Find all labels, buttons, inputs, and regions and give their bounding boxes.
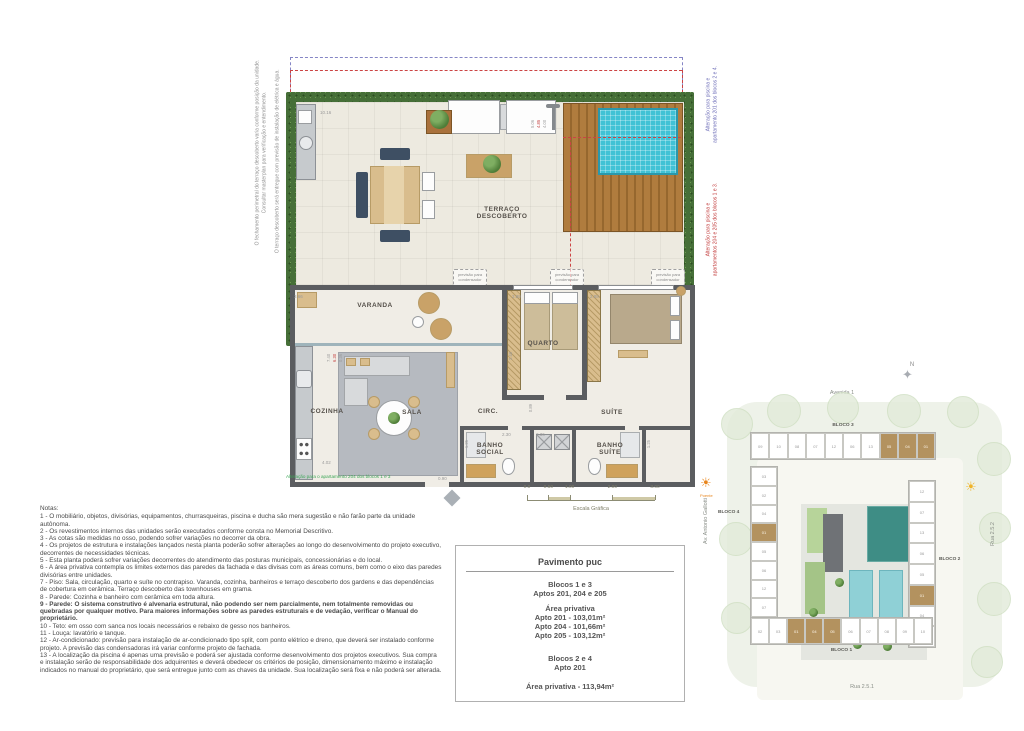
shower-head-icon	[546, 104, 560, 108]
pool-dimension-stack: 5.06 4.85 4.00	[530, 96, 547, 128]
banho-suite-label: BANHO SUÍTE	[588, 442, 632, 456]
tree	[721, 602, 753, 634]
scale-tick-label: 2.00	[604, 485, 620, 490]
sports-court	[867, 506, 909, 562]
bloco-4-strip: 0302040105061207	[750, 466, 778, 618]
window	[513, 285, 573, 290]
dim: 2.30	[502, 432, 511, 437]
dim: 4.02	[322, 460, 331, 465]
bathroom-counter	[606, 464, 638, 478]
scale-tick	[527, 495, 528, 500]
scale-bar: 0.00.501.002.003.00	[527, 492, 655, 501]
note-item: 11 - Louça: lavatório e tanque.	[40, 630, 442, 637]
site-unit-cell: 06	[751, 561, 777, 580]
site-unit-cell: 10	[914, 618, 932, 644]
tower	[823, 514, 843, 572]
dim: 2.89	[512, 294, 521, 299]
tree	[971, 646, 1003, 678]
bloco-3-label: BLOCO 3	[750, 423, 936, 428]
wall	[460, 426, 464, 483]
bloco-4-label: BLOCO 4	[718, 510, 739, 515]
scale-tick-label: 0.50	[540, 485, 556, 490]
site-unit-cell: 13	[909, 523, 935, 544]
banho-social-label: BANHO SOCIAL	[468, 442, 512, 456]
note-item: 2 - Os revestimentos internos das unidad…	[40, 528, 442, 535]
blocks13-subtitle: Aptos 201, 204 e 205	[456, 589, 684, 598]
site-plan: N ✦ Avenida 1	[712, 362, 1022, 722]
door-gap	[625, 426, 639, 430]
tree	[977, 582, 1011, 616]
tree	[835, 578, 844, 587]
tree	[977, 442, 1011, 476]
site-unit-cell: 01	[917, 433, 935, 459]
site-unit-cell: 06	[909, 543, 935, 564]
blocks13-title: Blocos 1 e 3	[456, 580, 684, 589]
chaise	[344, 378, 368, 406]
area-title: Área privativa	[456, 604, 684, 613]
pavimento-info-box: Pavimento puc Blocos 1 e 3 Aptos 201, 20…	[455, 545, 685, 702]
site-block-square: 09100807120613050401 0302040105061207 12…	[727, 402, 1002, 687]
dining-chair	[422, 200, 435, 219]
bathroom-counter	[466, 464, 496, 478]
site-unit-cell: 05	[751, 542, 777, 561]
wall	[502, 395, 544, 400]
condenser-box: previsão para condensador	[453, 269, 487, 286]
site-unit-cell: 02	[751, 618, 769, 644]
floor-plan: TERRAÇO DESCOBERTO 10.16 5.06 4.85 4.00 …	[280, 40, 705, 510]
site-unit-cell: 01	[751, 523, 777, 542]
pool	[598, 108, 678, 175]
site-unit-cell: 12	[751, 580, 777, 599]
site-unit-cell: 09	[751, 433, 769, 459]
kitchen-sink	[296, 370, 312, 388]
wall	[572, 426, 576, 483]
site-unit-cell: 09	[896, 618, 914, 644]
scale-tick	[655, 495, 656, 500]
terrace-sink	[299, 136, 313, 150]
bloco-1-strip: 02030104050607080910	[750, 617, 933, 645]
sala-chair	[368, 396, 380, 408]
dim: 1.25	[464, 440, 469, 448]
scale-tick	[548, 495, 549, 500]
area-line: Apto 205 - 103,12m²	[456, 631, 684, 640]
site-unit-cell: 04	[751, 505, 777, 524]
table-runner	[384, 166, 404, 224]
site-unit-cell: 05	[880, 433, 898, 459]
bed-bench	[618, 350, 648, 358]
site-unit-cell: 05	[909, 564, 935, 585]
sofa-pillow	[346, 358, 356, 366]
site-unit-cell: 02	[751, 486, 777, 505]
lounge-sofa	[448, 100, 500, 134]
tree	[827, 392, 859, 424]
dining-bench	[380, 230, 410, 242]
dashed-line	[290, 70, 682, 71]
site-unit-cell: 01	[787, 618, 805, 644]
north-star-icon: ✦	[902, 367, 913, 383]
alteration-note-green: Alteração para o apartamento 204 dos blo…	[286, 474, 390, 479]
circ-label: CIRC.	[472, 408, 504, 415]
scale-tick	[612, 495, 613, 500]
bloco-1-label: BLOCO 1	[750, 648, 933, 653]
scale-tick-label: 0.0	[519, 485, 535, 490]
site-unit-cell: 07	[751, 598, 777, 617]
wall	[530, 426, 534, 483]
site-unit-cell: 13	[861, 433, 879, 459]
tree	[809, 608, 818, 617]
note-item: 9 - Parede: O sistema construtivo é alve…	[40, 601, 442, 623]
notes-list: 1 - O mobiliário, objetos, divisórias, e…	[40, 513, 442, 674]
pillow	[670, 320, 680, 340]
dining-chair	[422, 172, 435, 191]
entry-door-gap	[425, 482, 449, 487]
pillow	[552, 292, 578, 304]
pool-alteration-line	[563, 137, 681, 138]
door-gap	[508, 426, 522, 430]
notes-section: Notas: 1 - O mobiliário, objetos, divisó…	[40, 505, 442, 674]
area-line: Apto 204 - 101,66m²	[456, 622, 684, 631]
tree	[947, 396, 979, 428]
shower-icon	[552, 108, 555, 130]
condenser-box: previsão para condensador	[651, 269, 685, 286]
sun-east-icon: ☀	[965, 480, 977, 493]
lawn	[805, 562, 825, 614]
dining-bench	[380, 148, 410, 160]
notes-title: Notas:	[40, 505, 442, 512]
pillow	[670, 296, 680, 316]
site-unit-cell: 08	[788, 433, 806, 459]
site-unit-cell: 06	[841, 618, 859, 644]
dim: 2.36	[536, 432, 545, 437]
alteration-note-blue: Alteração para piscina e apartamento 201…	[706, 45, 719, 165]
wall	[642, 426, 646, 483]
site-unit-cell: 03	[769, 618, 787, 644]
stove	[296, 438, 312, 460]
scale-tick-label: 1.00	[562, 485, 578, 490]
site-unit-cell: 12	[909, 481, 935, 502]
cooktop	[298, 110, 312, 124]
compass-icon	[444, 490, 461, 507]
note-item: 5 - Esta planta poderá sofrer variações …	[40, 557, 442, 564]
site-unit-cell: 01	[909, 585, 935, 606]
dim: 0.89	[528, 404, 533, 412]
site-unit-cell: 05	[823, 618, 841, 644]
sala-chair	[408, 428, 420, 440]
scale-tick	[570, 495, 571, 500]
side-table	[412, 316, 424, 328]
dim: 2.48	[508, 352, 513, 360]
site-unit-cell: 06	[843, 433, 861, 459]
scale-segment	[548, 497, 570, 500]
sofa-pillow	[360, 358, 370, 366]
dim: 1.25	[646, 440, 651, 448]
tree	[721, 408, 753, 440]
blocks24-area: Área privativa - 113,94m²	[456, 682, 684, 691]
wardrobe	[587, 290, 601, 382]
lamp	[676, 286, 686, 296]
site-unit-cell: 07	[806, 433, 824, 459]
quarto-label: QUARTO	[518, 340, 568, 347]
pool-alteration-line	[570, 137, 571, 287]
sun-west-label: Poente	[700, 489, 713, 502]
toilet	[502, 458, 515, 475]
note-item: 1 - O mobiliário, objetos, divisórias, e…	[40, 513, 442, 528]
sideboard	[446, 352, 455, 388]
site-unit-cell: 03	[751, 467, 777, 486]
toilet	[588, 458, 601, 475]
plant	[430, 110, 449, 129]
scale-label: Escala Gráfica	[527, 506, 655, 512]
wall	[690, 285, 695, 487]
dim-terrace-width: 10.16	[320, 110, 331, 115]
dining-bench	[356, 172, 368, 218]
note-item: 8 - Parede: Cozinha e banheiro com cerâm…	[40, 594, 442, 601]
rattan-chair	[418, 292, 440, 314]
pillow	[524, 292, 550, 304]
tree	[719, 522, 753, 556]
sun-west-icon: ☀Poente	[700, 476, 713, 502]
blocks24-title: Blocos 2 e 4	[456, 654, 684, 663]
window	[598, 285, 674, 290]
site-unit-cell: 08	[878, 618, 896, 644]
plant	[483, 155, 501, 173]
site-unit-cell: 12	[825, 433, 843, 459]
terrace-label: TERRAÇO DESCOBERTO	[452, 206, 552, 220]
note-item: 13 - A localização da piscina é apenas u…	[40, 652, 442, 674]
sala-chair	[368, 428, 380, 440]
condenser-box: previsão para condensador	[550, 269, 584, 286]
note-item: 4 - Os projetos de estrutura e instalaçõ…	[40, 542, 442, 557]
note-item: 6 - A área privativa contempla os limite…	[40, 564, 442, 579]
sala-chair	[408, 396, 420, 408]
street-rua-252: Rua 2.5.2	[990, 504, 996, 564]
dim: 0.90	[438, 476, 447, 481]
terrace-side-note-1: O fechamento perimetral do terraço desco…	[255, 22, 268, 284]
varanda-dimension-stack: 7.40 6.30 0.36	[326, 328, 343, 362]
floorplan-page: { "floor_plan": { "side_note_left_1": "O…	[0, 0, 1024, 731]
site-unit-cell: 04	[898, 433, 916, 459]
street-rua-251: Rua 2.5.1	[802, 684, 922, 690]
blocks13-areas: Apto 201 - 103,01m²Apto 204 - 101,66m²Ap…	[456, 613, 684, 640]
wall	[290, 482, 695, 487]
bloco-2-label: BLOCO 2	[939, 557, 960, 562]
info-box-title: Pavimento puc	[456, 557, 684, 567]
note-item: 3 - As cotas são medidas no osso, podend…	[40, 535, 442, 542]
note-item: 12 - Ar-condicionado: previsão para inst…	[40, 637, 442, 652]
site-unit-cell: 04	[805, 618, 823, 644]
note-item: 10 - Teto: em osso com sanca nos locais …	[40, 623, 442, 630]
blocks24-subtitle: Apto 201	[456, 663, 684, 672]
wall	[566, 395, 587, 400]
scale-segment	[612, 497, 655, 500]
cozinha-label: COZINHA	[302, 408, 352, 415]
lounge-side-table	[500, 104, 507, 130]
service-shaft	[554, 434, 570, 450]
dim: 3.66	[294, 294, 303, 299]
rattan-chair	[430, 318, 452, 340]
scale-tick-label: 3.00	[647, 485, 663, 490]
alteration-note-red: Alteração para piscina e apartamentos 20…	[706, 160, 719, 300]
varanda-label: VARANDA	[340, 302, 410, 309]
site-unit-cell: 07	[909, 502, 935, 523]
divider	[466, 571, 674, 572]
bloco-3-strip: 09100807120613050401	[750, 432, 936, 460]
sala-label: SALA	[392, 409, 432, 416]
site-unit-cell: 07	[860, 618, 878, 644]
site-unit-cell: 10	[769, 433, 787, 459]
dim: 2.88	[590, 294, 599, 299]
area-line: Apto 201 - 103,01m²	[456, 613, 684, 622]
note-item: 7 - Piso: Sala, circulação, quarto e suí…	[40, 579, 442, 594]
dashed-line	[290, 57, 682, 58]
suite-label: SUÍTE	[592, 409, 632, 416]
